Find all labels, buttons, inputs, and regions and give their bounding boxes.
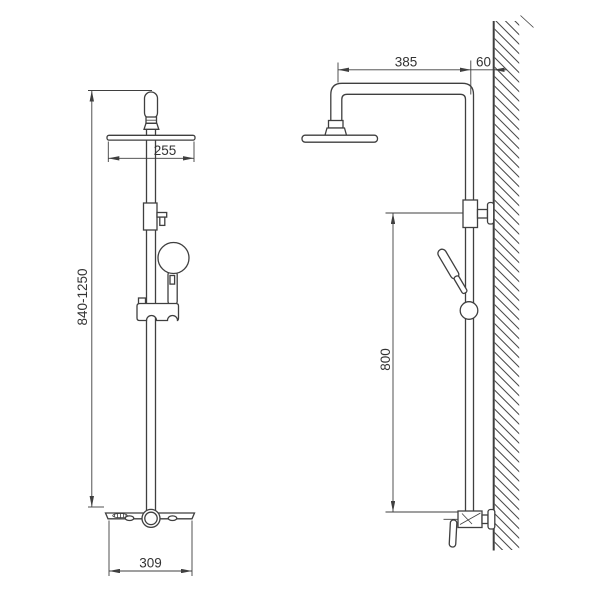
valve-wall-flange [488, 510, 495, 530]
dim-base-width: 309 [109, 521, 192, 577]
pole-top-cap [145, 92, 158, 119]
shower-system-dimension-drawing: 255 840-1250 309 [0, 0, 600, 600]
tray-knob-left [125, 516, 134, 521]
dim-label-riser-height: 800 [378, 348, 393, 371]
dim-label-arm-reach: 385 [395, 55, 418, 70]
dim-label-base-width: 309 [139, 556, 162, 571]
tray-knob-right [168, 516, 177, 521]
hand-shower-bracket [137, 304, 179, 321]
valve-neck [482, 515, 488, 524]
diverter-knob-vertical [160, 217, 165, 225]
side-view: 385 60 800 [302, 16, 534, 551]
hand-shower-head-front [158, 243, 189, 274]
wall-bracket-flange [488, 203, 494, 225]
wall-bracket-arm [478, 210, 488, 219]
dim-label-head-width: 255 [154, 143, 177, 158]
dim-label-wall-offset: 60 [476, 55, 491, 70]
head-connector-front [144, 123, 159, 129]
hand-shower-button [170, 276, 175, 285]
wall-bracket-body [463, 200, 478, 228]
overhead-shower-plate-front [107, 135, 195, 140]
head-connector-side-lower [325, 128, 347, 135]
diverter-knob-horizontal [157, 213, 167, 218]
shower-arm-inner [342, 94, 466, 511]
shower-arm-outer [331, 83, 474, 511]
wall-hatch [495, 21, 520, 550]
dim-label-height-range: 840-1250 [75, 268, 90, 325]
dim-arm-reach: 385 [338, 55, 471, 95]
hand-shower-wand-side [436, 248, 469, 295]
head-connector-side-upper [329, 121, 344, 129]
valve-lever-handle [449, 520, 457, 547]
wand-holder-ring [460, 302, 478, 320]
wall-hatch-stray [521, 16, 534, 28]
front-view: 255 840-1250 309 [75, 91, 195, 577]
technical-drawing-canvas: 255 840-1250 309 [0, 0, 600, 600]
overhead-shower-plate-side [302, 135, 378, 142]
slider-block [144, 203, 158, 230]
